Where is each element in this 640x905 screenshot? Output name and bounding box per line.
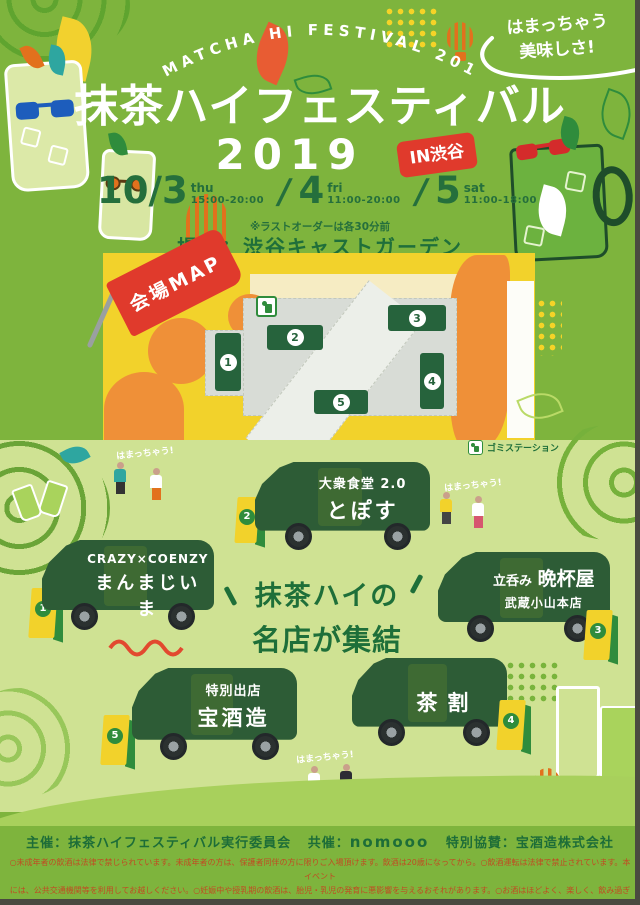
truck-label-line1: 特別出店 [175,680,292,699]
truck-label-line2: とぽす [301,495,425,525]
booth-number: 3 [409,310,426,327]
date-detail: sat 11:00-18:00 [464,182,537,209]
date-day: 10/3 [97,172,188,209]
trash-station-icon [256,296,277,317]
truck-wheel [384,523,411,550]
poster-title: 抹茶ハイフェスティバル [0,70,640,134]
legal-fine-print: ○未成年者の飲酒は法律で禁じられています。未成年者の方は、保護者同伴の方に限りご… [6,856,634,905]
date-separator: / [275,175,293,209]
date-separator: / [412,175,430,209]
map-legend: ゴミステーション [468,440,559,455]
map-booth-3: 3 [388,305,446,331]
booth-number: 1 [220,354,237,371]
fine-print-line1: ○未成年者の飲酒は法律で禁じられています。未成年者の方は、保護者同伴の方に限りご… [6,856,634,884]
map-booth-2: 2 [267,325,323,350]
truck-label-name: 晩杯屋 [538,568,595,590]
organizer-credit: 主催：抹茶ハイフェスティバル実行委員会 [26,836,291,851]
truck-label-line2: 茶割 [392,687,502,717]
truck-sign-5: 5 [102,715,128,765]
sign-number: 3 [590,623,606,639]
truck-label: 茶割 [392,684,502,717]
food-truck-chawari: 茶割 [352,658,507,746]
truck-wheel [168,603,195,630]
scan-edge [0,899,640,905]
legend-label: ゴミステーション [487,441,559,454]
food-truck-manmajiima: CRAZY×COENZY まんまじいま [42,540,214,630]
sign-number: 4 [503,713,519,729]
map-booth-4: 4 [420,353,444,409]
truck-label-line1: 大衆食堂 2.0 [301,473,425,492]
sign-number: 5 [107,728,123,744]
map-blob [104,372,184,447]
booth-number: 4 [424,373,441,390]
food-truck-takarashuzo: 特別出店 宝酒造 [132,668,297,760]
map-booth-1: 1 [215,333,241,391]
truck-label-line2: 宝酒造 [175,702,292,732]
squiggle-decoration [108,636,188,654]
truck-sign-4: 4 [498,700,524,750]
truck-label-line1: CRAZY×COENZY [87,552,209,566]
truck-wheel [71,603,98,630]
center-headline: 抹茶ハイの 名店が集結 [232,574,422,659]
cohost-name: nomooo [350,833,430,851]
map-blob [450,255,510,445]
date-detail: fri 11:00-20:00 [327,182,400,209]
truck-wheel [467,615,494,642]
truck-wheel [463,719,490,746]
truck-label: 大衆食堂 2.0 とぽす [301,473,425,525]
drink-glass-decoration [556,686,600,780]
date-day: 5 [435,172,461,209]
sign-number: 2 [239,509,255,525]
credits-line: 主催：抹茶ハイフェスティバル実行委員会 共催：nomooo 特別協賛：宝酒造株式… [0,832,640,851]
scan-edge [635,0,640,905]
headline-line2: 名店が集結 [232,617,422,659]
trash-station-icon [468,440,483,455]
truck-wheel [378,719,405,746]
truck-sign-3: 3 [585,610,611,660]
cohost-label: 共催： [308,836,350,851]
sponsor-credit: 特別協賛：宝酒造株式会社 [446,836,614,851]
truck-label: 特別出店 宝酒造 [175,680,292,732]
truck-wheel [160,733,187,760]
date-day: 4 [298,172,324,209]
truck-wheel [252,733,279,760]
truck-label-line1: 立呑み 晩杯屋 [483,564,605,591]
event-dates: 10/3 thu 15:00-20:00 / 4 fri 11:00-20:00… [0,172,640,209]
food-truck-topos: 大衆食堂 2.0 とぽす [255,462,430,550]
date-detail: thu 15:00-20:00 [191,182,264,209]
truck-label-prefix: 立呑み [493,574,532,589]
headline-line1: 抹茶ハイの [232,574,422,613]
booth-number: 5 [333,394,350,411]
festival-poster: MATCHA HI FESTIVAL 2019 はまっちゃう 美味しさ! 抹茶ハ… [0,0,640,905]
dots-decoration [536,298,562,356]
truck-label-sub: 武蔵小山本店 [483,594,605,611]
map-booth-5: 5 [314,390,368,414]
truck-label: 立呑み 晩杯屋 武蔵小山本店 [483,564,605,611]
truck-wheel [285,523,312,550]
booth-number: 2 [287,329,304,346]
